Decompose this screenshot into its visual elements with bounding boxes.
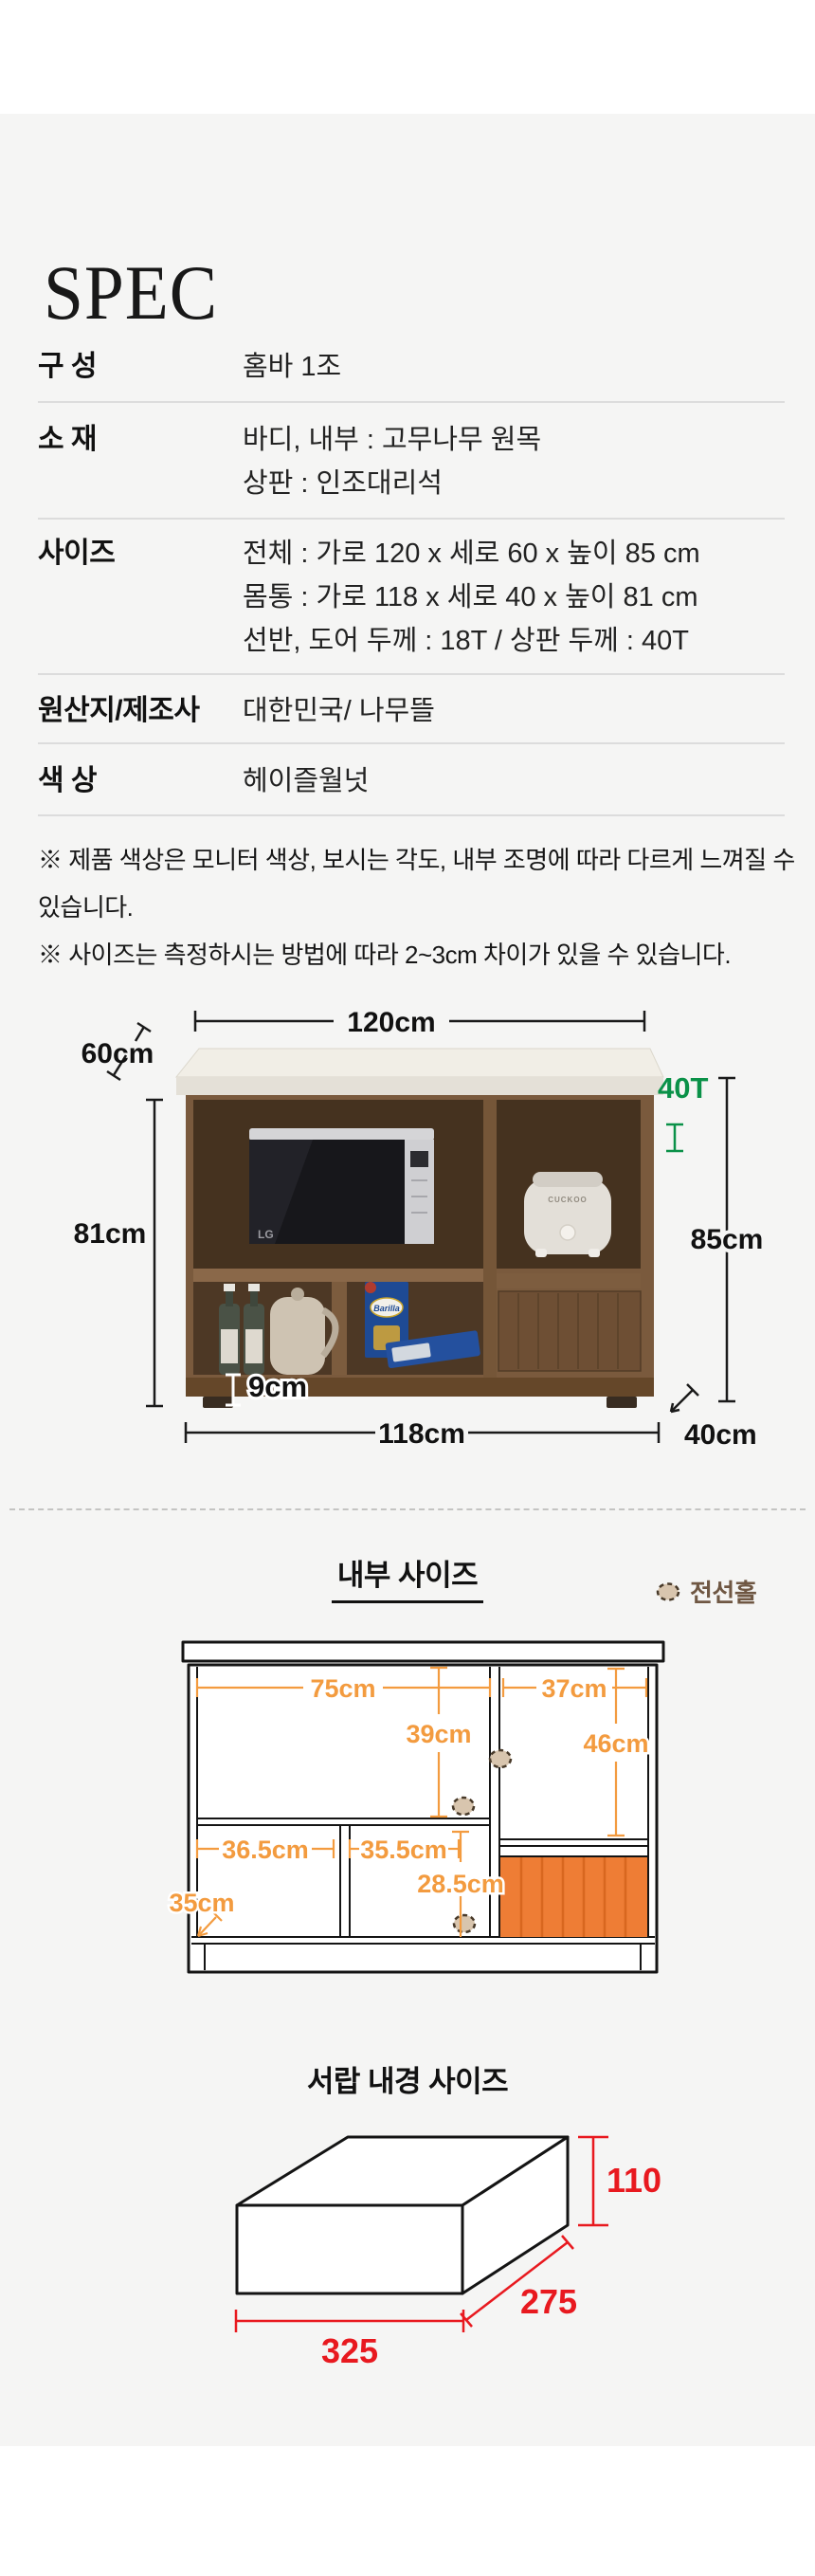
wire-hole-legend: 전선홀 — [654, 1574, 756, 1609]
drawer-depth-label: 275 — [520, 2282, 577, 2321]
right-height-label: 46cm — [583, 1729, 648, 1758]
right-width-label: 37cm — [541, 1674, 607, 1703]
drawer-height-label: 28.5cm — [417, 1870, 504, 1898]
drawer-size-heading: 서랍 내경 사이즈 — [0, 2057, 815, 2100]
note-line: ※ 제품 색상은 모니터 색상, 보시는 각도, 내부 조명에 따라 다르게 느… — [38, 836, 815, 931]
pasta-brand-label: Barilla — [373, 1304, 400, 1313]
spec-table: 구 성 홈바 1조 소 재 바디, 내부 : 고무나무 원목 상판 : 인조대리… — [38, 329, 785, 816]
center-wall — [483, 1100, 497, 1378]
base-height-label: 9cm — [248, 1370, 307, 1403]
value-line: 헤이즐월넛 — [243, 759, 785, 803]
body-depth-dimension-line — [671, 1384, 698, 1412]
body-height-label: 81cm — [74, 1218, 147, 1250]
drawer-height-line — [578, 2137, 608, 2225]
cabinet-foot-right — [607, 1397, 637, 1408]
value-line: 홈바 1조 — [243, 345, 785, 389]
drawer-width-line — [236, 2310, 463, 2332]
table-row: 사이즈 전체 : 가로 120 x 세로 60 x 높이 85 cm 몸통 : … — [38, 520, 785, 675]
lower-center-width-label: 35.5cm — [360, 1836, 447, 1864]
value-line: 대한민국/ 나무뜰 — [243, 689, 785, 733]
drawer-highlight — [500, 1857, 647, 1937]
top-depth-label: 60cm — [81, 1038, 154, 1069]
drawer-height-label: 110 — [607, 2161, 661, 2200]
row-value: 헤이즐월넛 — [243, 759, 785, 803]
product-photo-with-dimensions: LG CUCKOO — [0, 967, 815, 1498]
lower-depth-label: 35cm — [169, 1889, 234, 1917]
left-width-label: 75cm — [310, 1674, 375, 1703]
top-thickness-ibeam — [666, 1124, 683, 1151]
top-width-label: 120cm — [347, 1007, 435, 1038]
table-row: 색 상 헤이즐월넛 — [38, 744, 785, 816]
table-row: 구 성 홈바 1조 — [38, 329, 785, 403]
row-label: 소 재 — [38, 418, 243, 462]
countertop-front-face — [176, 1077, 663, 1095]
table-row: 소 재 바디, 내부 : 고무나무 원목 상판 : 인조대리석 — [38, 403, 785, 520]
row-label: 색 상 — [38, 759, 243, 803]
row-value: 홈바 1조 — [243, 345, 785, 389]
drawer-isometric-box — [237, 2137, 568, 2293]
disclaimer-notes: ※ 제품 색상은 모니터 색상, 보시는 각도, 내부 조명에 따라 다르게 느… — [38, 836, 815, 978]
wire-hole-icon — [490, 1750, 511, 1767]
body-height-dimension-line — [146, 1100, 163, 1406]
wire-hole-legend-label: 전선홀 — [690, 1574, 756, 1609]
row-label: 구 성 — [38, 345, 243, 389]
cooker-brand-label: CUCKOO — [548, 1196, 588, 1204]
row-value: 바디, 내부 : 고무나무 원목 상판 : 인조대리석 — [243, 418, 785, 505]
value-line: 바디, 내부 : 고무나무 원목 — [243, 418, 785, 462]
body-width-label: 118cm — [378, 1418, 465, 1450]
rice-cooker: CUCKOO — [524, 1172, 611, 1257]
total-height-label: 85cm — [691, 1224, 764, 1255]
left-shelf — [193, 1269, 483, 1282]
microwave: LG — [249, 1128, 434, 1244]
page-title: SPEC — [44, 254, 218, 332]
wire-hole-icon — [654, 1581, 682, 1602]
wire-hole-icon — [453, 1798, 474, 1815]
row-label: 사이즈 — [38, 532, 243, 575]
dashed-divider — [9, 1508, 806, 1510]
value-line: 몸통 : 가로 118 x 세로 40 x 높이 81 cm — [243, 575, 785, 619]
value-line: 상판 : 인조대리석 — [243, 462, 785, 505]
drawer-rail — [497, 1273, 641, 1288]
lower-left-width-label: 36.5cm — [222, 1836, 309, 1864]
wire-hole-icon — [454, 1915, 475, 1932]
cabinet-illustration: LG CUCKOO — [176, 1049, 663, 1408]
drawer-size-diagram: 110 275 325 — [0, 2105, 815, 2389]
value-line: 전체 : 가로 120 x 세로 60 x 높이 85 cm — [243, 532, 785, 575]
drawer-front — [498, 1291, 641, 1371]
drawer-width-label: 325 — [321, 2331, 378, 2370]
body-depth-label: 40cm — [684, 1419, 757, 1451]
internal-size-diagram: 75cm 37cm 39cm 46cm 36.5cm — [0, 1631, 815, 1982]
row-value: 대한민국/ 나무뜰 — [243, 689, 785, 733]
countertop-top-face — [176, 1049, 663, 1077]
top-thickness-label: 40T — [658, 1071, 708, 1105]
microwave-brand-label: LG — [258, 1228, 274, 1241]
table-row: 원산지/제조사 대한민국/ 나무뜰 — [38, 675, 785, 744]
value-line: 선반, 도어 두께 : 18T / 상판 두께 : 40T — [243, 619, 785, 663]
row-label: 원산지/제조사 — [38, 689, 243, 733]
product-spec-page: SPEC 구 성 홈바 1조 소 재 바디, 내부 : 고무나무 원목 상판 :… — [0, 0, 815, 2576]
row-value: 전체 : 가로 120 x 세로 60 x 높이 85 cm 몸통 : 가로 1… — [243, 532, 785, 663]
left-height-label: 39cm — [406, 1720, 471, 1748]
